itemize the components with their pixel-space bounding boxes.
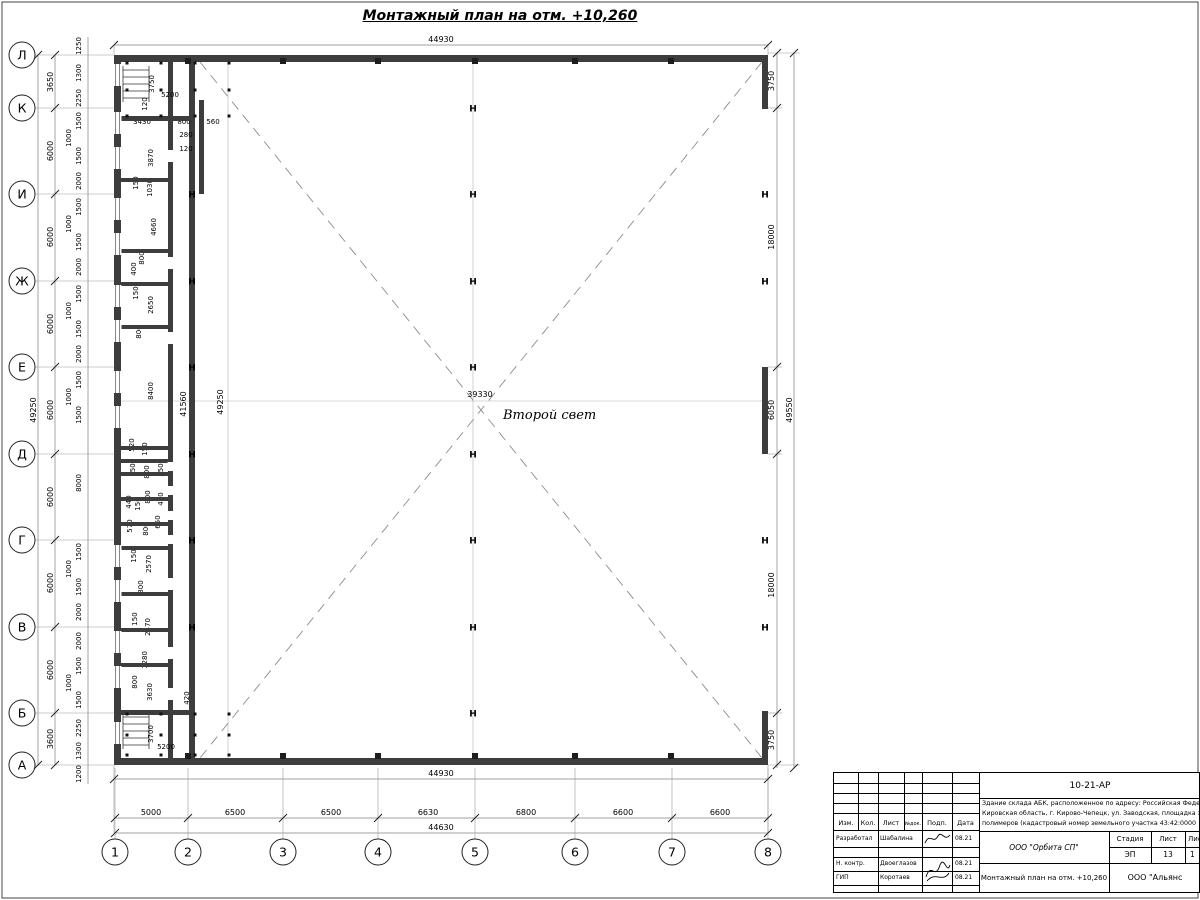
dim-label: 1500 bbox=[75, 406, 83, 424]
dim-label: 1500 bbox=[75, 578, 83, 596]
dim-label: 1300 bbox=[75, 742, 83, 760]
dim-label: 2470 bbox=[144, 618, 152, 636]
axis-label: 4 bbox=[374, 845, 382, 860]
axis-label: Д bbox=[17, 447, 27, 462]
dim-label: 120 bbox=[141, 97, 149, 110]
dim-label: 44630 bbox=[428, 823, 453, 832]
h-column: H bbox=[188, 278, 196, 288]
dim-label: 1200 bbox=[75, 765, 83, 783]
dim-label: 2250 bbox=[75, 719, 83, 737]
column-dot bbox=[228, 734, 231, 737]
window-opening bbox=[114, 285, 122, 307]
dim-label: 6000 bbox=[46, 400, 55, 420]
column-dot bbox=[194, 713, 197, 716]
tb-sheets-value: 1 bbox=[1190, 850, 1195, 859]
drawing-sheet: { "title": "Монтажный план на отм. +10,2… bbox=[0, 0, 1200, 900]
dim-label: 5000 bbox=[141, 808, 161, 817]
partition-wall bbox=[114, 592, 173, 596]
column-dot bbox=[126, 754, 129, 757]
tb-stage-value: ЭП bbox=[1109, 850, 1151, 859]
door-opening bbox=[168, 647, 174, 659]
h-column: H bbox=[761, 624, 769, 634]
door-opening bbox=[168, 150, 174, 162]
dim-label: 6000 bbox=[46, 660, 55, 680]
window-opening bbox=[114, 666, 122, 688]
partition-wall bbox=[114, 472, 173, 476]
h-column: H bbox=[188, 191, 196, 201]
dim-label: 2000 bbox=[75, 172, 83, 190]
partition-wall bbox=[114, 249, 173, 253]
partition-wall bbox=[114, 325, 173, 329]
tb-sheet-value: 13 bbox=[1151, 850, 1185, 859]
door-opening bbox=[168, 257, 174, 269]
h-column: H bbox=[469, 364, 477, 374]
tb-sheet-label: Лист bbox=[1151, 835, 1185, 843]
dim-label: 1500 bbox=[75, 371, 83, 389]
door-opening bbox=[168, 578, 174, 590]
axis-label: Е bbox=[18, 360, 26, 375]
door-opening bbox=[168, 486, 174, 495]
dim-label: 6800 bbox=[516, 808, 536, 817]
dim-label: 3750 bbox=[767, 71, 776, 91]
axis-label: Ж bbox=[15, 274, 29, 289]
column-dot bbox=[160, 754, 163, 757]
tb-col-list: Лист bbox=[878, 819, 904, 827]
column-dot bbox=[126, 89, 129, 92]
dim-label: 150 bbox=[130, 549, 138, 562]
dim-label: 6050 bbox=[767, 400, 776, 420]
square-column bbox=[472, 58, 478, 64]
tb-role-3: ГИП bbox=[836, 874, 849, 881]
dim-label: 6600 bbox=[710, 808, 730, 817]
floor-plan-canvas: Второй свет 4493044930500065006500663068… bbox=[0, 0, 1200, 900]
square-column bbox=[572, 753, 578, 759]
dim-label: 1000 bbox=[65, 215, 73, 233]
h-column: H bbox=[761, 537, 769, 547]
dim-label: 1000 bbox=[65, 674, 73, 692]
column-dot bbox=[126, 734, 129, 737]
dim-label: 1000 bbox=[65, 388, 73, 406]
partition-wall bbox=[114, 282, 173, 286]
tb-role-2: Н. контр. bbox=[836, 860, 865, 867]
signature bbox=[923, 857, 952, 884]
dim-label: 18000 bbox=[767, 224, 776, 249]
dim-label: 6000 bbox=[46, 487, 55, 507]
axis-label: Л bbox=[17, 48, 26, 63]
square-column bbox=[185, 58, 191, 64]
h-column: H bbox=[469, 451, 477, 461]
dim-label: 800 bbox=[137, 580, 145, 593]
title-block: Изм. Кол. Лист №док. Подп. Дата Разработ… bbox=[833, 772, 1200, 893]
dim-label: 280 bbox=[179, 131, 192, 139]
dim-label: 6000 bbox=[46, 314, 55, 334]
dim-label: 3600 bbox=[46, 729, 55, 749]
window-opening bbox=[114, 580, 122, 602]
wall-stub bbox=[199, 100, 204, 194]
door-opening bbox=[168, 332, 174, 344]
window-opening bbox=[114, 406, 122, 428]
column-dot bbox=[194, 115, 197, 118]
axis-label: 2 bbox=[184, 845, 192, 860]
tb-col-izm: Изм. bbox=[834, 819, 858, 827]
column-dot bbox=[194, 754, 197, 757]
tb-desc-line2: Кировская область, г. Кирово-Чепецк, ул.… bbox=[982, 810, 1200, 817]
window-opening bbox=[114, 545, 122, 567]
dim-label: 1500 bbox=[75, 691, 83, 709]
window-opening bbox=[114, 147, 122, 169]
h-column: H bbox=[469, 191, 477, 201]
tb-sheets-label: Листов bbox=[1188, 835, 1200, 843]
dim-label: 6600 bbox=[613, 808, 633, 817]
dim-label: 3870 bbox=[147, 149, 155, 167]
h-column: H bbox=[469, 537, 477, 547]
dim-label: 8000 bbox=[75, 474, 83, 492]
dim-label: 2570 bbox=[145, 555, 153, 573]
axis-label: К bbox=[18, 101, 27, 116]
column-dot bbox=[228, 62, 231, 65]
dim-label: 6000 bbox=[46, 141, 55, 161]
axis-label: Б bbox=[18, 706, 27, 721]
dim-label: 3650 bbox=[46, 72, 55, 92]
stair-top-left bbox=[123, 66, 149, 102]
h-column: H bbox=[188, 364, 196, 374]
window-opening bbox=[114, 112, 122, 134]
tb-doc-number: 10-21-АР bbox=[979, 781, 1200, 791]
axis-label: 6 bbox=[571, 845, 579, 860]
dim-label: 150 bbox=[132, 286, 140, 299]
h-column: H bbox=[469, 710, 477, 720]
tb-role-1: Разработал bbox=[836, 835, 872, 842]
square-column bbox=[668, 58, 674, 64]
dim-label: 2650 bbox=[147, 296, 155, 314]
dim-label: 2250 bbox=[75, 89, 83, 107]
dim-label: 6630 bbox=[418, 808, 438, 817]
dim-label: 800 bbox=[138, 251, 146, 264]
column-dot bbox=[228, 754, 231, 757]
window-opening bbox=[114, 371, 122, 393]
dim-label: 2000 bbox=[75, 632, 83, 650]
axis-label: В bbox=[18, 620, 27, 635]
window-opening bbox=[114, 198, 122, 220]
dim-label: 3750 bbox=[148, 75, 156, 93]
partition-wall bbox=[114, 459, 173, 463]
h-column: H bbox=[469, 624, 477, 634]
window-opening bbox=[114, 64, 122, 86]
h-column: H bbox=[188, 451, 196, 461]
square-column bbox=[572, 58, 578, 64]
tb-name-1: Шабалина bbox=[880, 835, 913, 842]
h-column: H bbox=[761, 191, 769, 201]
column-dot bbox=[194, 62, 197, 65]
dim-label: 2000 bbox=[75, 258, 83, 276]
dim-label: 1500 bbox=[75, 543, 83, 561]
h-column: H bbox=[188, 624, 196, 634]
dim-label: 1300 bbox=[75, 64, 83, 82]
partition-wall bbox=[114, 446, 173, 450]
axis-label: И bbox=[17, 187, 26, 202]
dim-label: 3630 bbox=[146, 683, 154, 701]
h-column: H bbox=[469, 278, 477, 288]
door-opening bbox=[168, 462, 174, 471]
square-column bbox=[185, 753, 191, 759]
dim-label: 44930 bbox=[428, 35, 453, 44]
tb-desc-line3: полимеров (кадастровый номер земельного … bbox=[982, 820, 1196, 827]
axis-label: Г bbox=[18, 533, 26, 548]
axis-label: 7 bbox=[668, 845, 676, 860]
square-column bbox=[280, 58, 286, 64]
tb-name-2: Двоеглазов bbox=[880, 860, 917, 867]
dim-label: 420 bbox=[183, 691, 191, 704]
dim-label: 1000 bbox=[65, 129, 73, 147]
window-opening bbox=[114, 320, 122, 342]
dim-label: 1000 bbox=[65, 302, 73, 320]
axis-label: 8 bbox=[764, 845, 772, 860]
tb-date-2: 08.21 bbox=[955, 860, 972, 867]
h-column: H bbox=[761, 278, 769, 288]
dim-label: 6000 bbox=[46, 573, 55, 593]
door-opening bbox=[168, 688, 174, 700]
signature bbox=[923, 831, 952, 846]
void-label: Второй свет bbox=[502, 408, 596, 423]
square-column bbox=[375, 753, 381, 759]
dim-label: 6500 bbox=[321, 808, 341, 817]
window-opening bbox=[114, 233, 122, 255]
dim-label: 560 bbox=[206, 118, 219, 126]
dim-label: 1500 bbox=[75, 285, 83, 303]
door-opening bbox=[168, 535, 174, 544]
partition-wall bbox=[114, 628, 173, 632]
window-opening bbox=[114, 631, 122, 653]
dim-label: 2000 bbox=[75, 345, 83, 363]
column-dot bbox=[160, 89, 163, 92]
dim-label: 49250 bbox=[29, 397, 38, 422]
dim-label: 44930 bbox=[428, 769, 453, 778]
dim-label: 6500 bbox=[225, 808, 245, 817]
dim-label: 1500 bbox=[75, 320, 83, 338]
h-column: H bbox=[469, 105, 477, 115]
partition-wall bbox=[114, 522, 173, 526]
tb-org2: ООО "Альянс bbox=[1109, 873, 1200, 882]
partition-wall bbox=[114, 497, 173, 501]
dim-label: 5200 bbox=[157, 743, 175, 751]
dim-label: 5200 bbox=[161, 91, 179, 99]
dim-label: 8400 bbox=[147, 382, 155, 400]
dim-label: 2000 bbox=[75, 603, 83, 621]
dim-label: 1000 bbox=[65, 560, 73, 578]
dim-label: 120 bbox=[179, 145, 192, 153]
partition-wall bbox=[114, 663, 173, 667]
dim-label: 1500 bbox=[75, 233, 83, 251]
dim-label: 3750 bbox=[767, 730, 776, 750]
dim-label: 1500 bbox=[75, 657, 83, 675]
partition-wall bbox=[114, 178, 173, 182]
square-column bbox=[472, 753, 478, 759]
dim-label: 18000 bbox=[767, 572, 776, 597]
axis-label: А bbox=[18, 758, 27, 773]
dim-label: 49250 bbox=[216, 389, 225, 414]
tb-org1: ООО "Орбита СП" bbox=[979, 843, 1109, 852]
tb-drawing-title: Монтажный план на отм. +10,260 bbox=[979, 874, 1109, 882]
square-column bbox=[375, 58, 381, 64]
column-dot bbox=[228, 713, 231, 716]
dim-label: 1500 bbox=[75, 147, 83, 165]
axis-label: 1 bbox=[111, 845, 119, 860]
dim-label: 49550 bbox=[785, 397, 794, 422]
walls bbox=[114, 55, 768, 765]
partition-wall bbox=[114, 546, 173, 550]
window-opening bbox=[114, 722, 122, 744]
wall-hall-west bbox=[189, 55, 195, 765]
tb-date-3: 08.21 bbox=[955, 874, 972, 881]
dim-label: 4660 bbox=[150, 218, 158, 236]
wall-bottom bbox=[114, 758, 768, 765]
dim-label: 150 bbox=[131, 612, 139, 625]
dim-label: 3700 bbox=[147, 725, 155, 743]
dim-label: 800 bbox=[131, 675, 139, 688]
column-dot bbox=[228, 89, 231, 92]
tb-col-data: Дата bbox=[952, 819, 979, 827]
column-dot bbox=[126, 62, 129, 65]
h-column: H bbox=[188, 537, 196, 547]
column-dot bbox=[160, 62, 163, 65]
column-dot bbox=[126, 115, 129, 118]
column-dot bbox=[194, 734, 197, 737]
column-dot bbox=[228, 115, 231, 118]
axis-label: 3 bbox=[279, 845, 287, 860]
dim-label: 1500 bbox=[75, 112, 83, 130]
dim-label: 41560 bbox=[179, 391, 188, 416]
void-cross-diagonals bbox=[200, 62, 762, 758]
tb-col-kol: Кол. bbox=[858, 819, 878, 827]
dim-label: 39330 bbox=[467, 390, 492, 399]
column-dot bbox=[194, 89, 197, 92]
square-column bbox=[280, 753, 286, 759]
door-opening bbox=[168, 511, 174, 520]
dim-label: 400 bbox=[130, 262, 138, 275]
tb-desc-line1: Здание склада АБК, расположенное по адре… bbox=[982, 800, 1200, 807]
tb-col-ndok: №док. bbox=[904, 821, 922, 827]
tb-date-1: 08.21 bbox=[955, 835, 972, 842]
column-dot bbox=[160, 713, 163, 716]
tb-col-podp: Подп. bbox=[922, 819, 952, 827]
square-column bbox=[668, 753, 674, 759]
tb-name-3: Коротаев bbox=[880, 874, 910, 881]
dim-label: 1250 bbox=[75, 37, 83, 55]
stair-bottom-left bbox=[123, 713, 149, 749]
dim-label: 1500 bbox=[75, 198, 83, 216]
dim-label: 6000 bbox=[46, 227, 55, 247]
tb-stage-label: Стадия bbox=[1109, 835, 1151, 843]
column-dot bbox=[160, 734, 163, 737]
column-dot bbox=[126, 713, 129, 716]
column-dot bbox=[160, 115, 163, 118]
axis-label: 5 bbox=[471, 845, 479, 860]
